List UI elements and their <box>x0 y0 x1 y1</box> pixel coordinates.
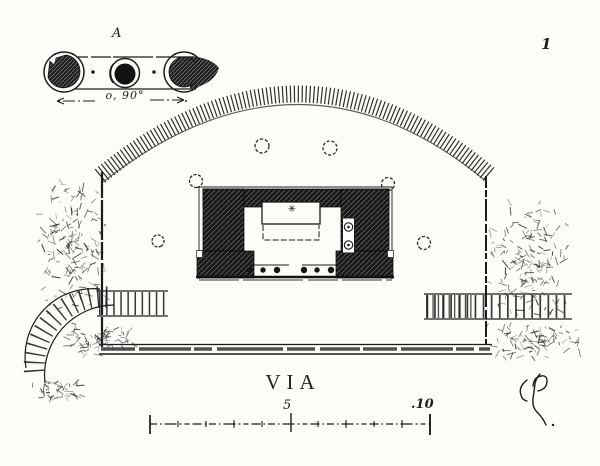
monument-pier-left <box>197 251 254 278</box>
plate-number: 1 <box>541 35 551 53</box>
monument-inner-step <box>263 225 319 240</box>
plan-drawing <box>0 0 600 466</box>
monument-right-inset <box>343 218 355 253</box>
enclosure-arc-hachure <box>100 94 491 182</box>
engraved-plate: A o, 90° 1 ✳ VIA 5 .10 <box>0 0 600 466</box>
monument-column-bases <box>246 265 340 273</box>
monument-plan <box>196 187 394 280</box>
enclosure-wall-bottom <box>99 345 492 355</box>
road-label: VIA <box>255 370 325 395</box>
altar-ornament-icon: ✳ <box>283 204 301 215</box>
signature-flourish-icon <box>520 374 554 426</box>
scale-mid-label: 5 <box>283 398 291 413</box>
masonry-wall-right <box>424 294 572 319</box>
masonry-wall-curved <box>25 289 114 383</box>
detail-dimension: o, 90° <box>96 89 154 102</box>
scale-end-label: .10 <box>411 397 434 412</box>
masonry-wall-left <box>97 291 168 316</box>
monument-pier-right <box>336 251 393 278</box>
scale-bar <box>150 413 430 435</box>
detail-label: A <box>112 26 121 41</box>
